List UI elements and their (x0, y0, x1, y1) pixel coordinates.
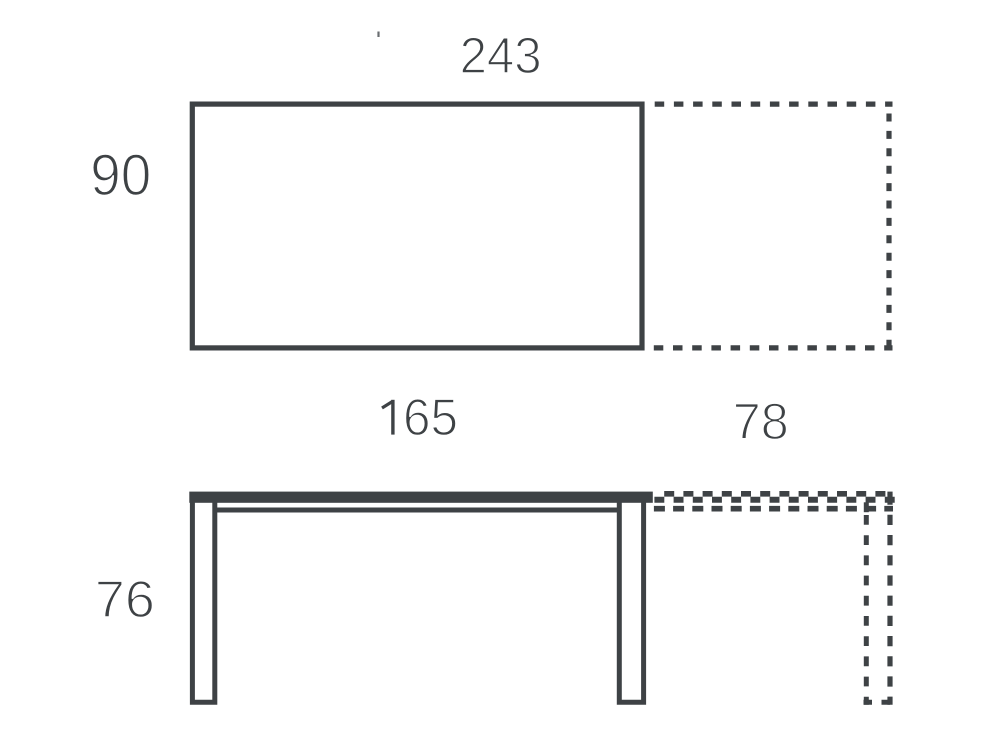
svg-text:243: 243 (460, 27, 542, 84)
svg-text:76: 76 (95, 571, 155, 629)
svg-text:78: 78 (733, 393, 789, 450)
svg-text:90: 90 (90, 143, 151, 208)
svg-text:65: 65 (403, 389, 458, 447)
